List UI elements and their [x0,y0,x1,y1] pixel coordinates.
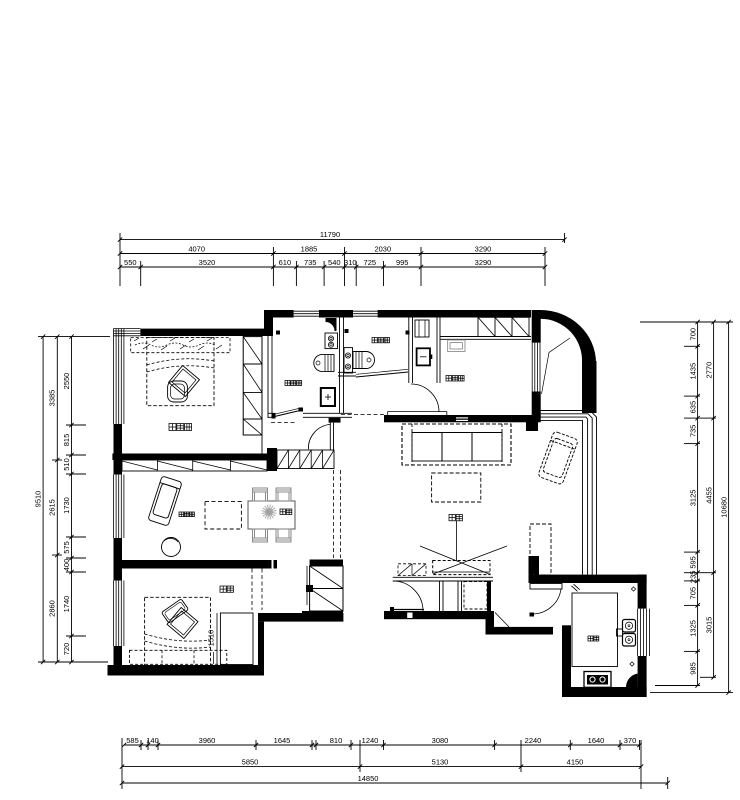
svg-text:700: 700 [689,328,698,341]
svg-text:540: 540 [328,258,341,267]
svg-text:5850: 5850 [242,758,259,767]
svg-text:3080: 3080 [432,736,449,745]
svg-text:10680: 10680 [720,497,729,518]
svg-text:3290: 3290 [475,258,492,267]
svg-text:2030: 2030 [374,245,391,254]
svg-text:3125: 3125 [689,490,698,507]
svg-text:4070: 4070 [188,245,205,254]
svg-text:1885: 1885 [301,245,318,254]
svg-text:2860: 2860 [48,600,57,617]
svg-text:9510: 9510 [34,491,43,508]
svg-text:400: 400 [62,559,71,572]
svg-text:1435: 1435 [689,363,698,380]
svg-text:725: 725 [364,258,377,267]
svg-text:2240: 2240 [525,736,542,745]
svg-text:310: 310 [344,258,357,267]
svg-text:3015: 3015 [705,617,714,634]
svg-text:550: 550 [124,258,137,267]
svg-text:585: 585 [126,736,139,745]
svg-text:3520: 3520 [199,258,216,267]
svg-text:635: 635 [689,401,698,414]
svg-text:705: 705 [689,587,698,600]
svg-text:1325: 1325 [689,620,698,637]
svg-text:3960: 3960 [199,736,216,745]
svg-text:11790: 11790 [320,230,340,239]
svg-text:5130: 5130 [432,758,449,767]
svg-text:735: 735 [689,425,698,438]
svg-text:610: 610 [279,258,292,267]
svg-text:1640: 1640 [588,736,605,745]
svg-text:3290: 3290 [475,245,492,254]
svg-text:510: 510 [62,458,71,471]
svg-text:4455: 4455 [705,487,714,504]
svg-text:985: 985 [689,662,698,675]
svg-text:735: 735 [304,258,317,267]
svg-text:2770: 2770 [705,362,714,379]
svg-text:1645: 1645 [274,736,291,745]
svg-text:720: 720 [62,643,71,656]
svg-text:810: 810 [330,736,343,745]
svg-text:2550: 2550 [62,373,71,390]
svg-text:4150: 4150 [567,758,584,767]
svg-text:1740: 1740 [62,596,71,613]
svg-text:1510: 1510 [207,630,216,647]
svg-text:2615: 2615 [48,499,57,516]
svg-text:995: 995 [396,258,409,267]
svg-text:370: 370 [624,736,637,745]
svg-text:3385: 3385 [48,390,57,407]
svg-text:14850: 14850 [358,774,379,783]
svg-text:1240: 1240 [362,736,379,745]
svg-text:595: 595 [689,556,698,569]
svg-text:1730: 1730 [62,497,71,514]
svg-text:815: 815 [62,434,71,447]
svg-text:575: 575 [62,541,71,554]
